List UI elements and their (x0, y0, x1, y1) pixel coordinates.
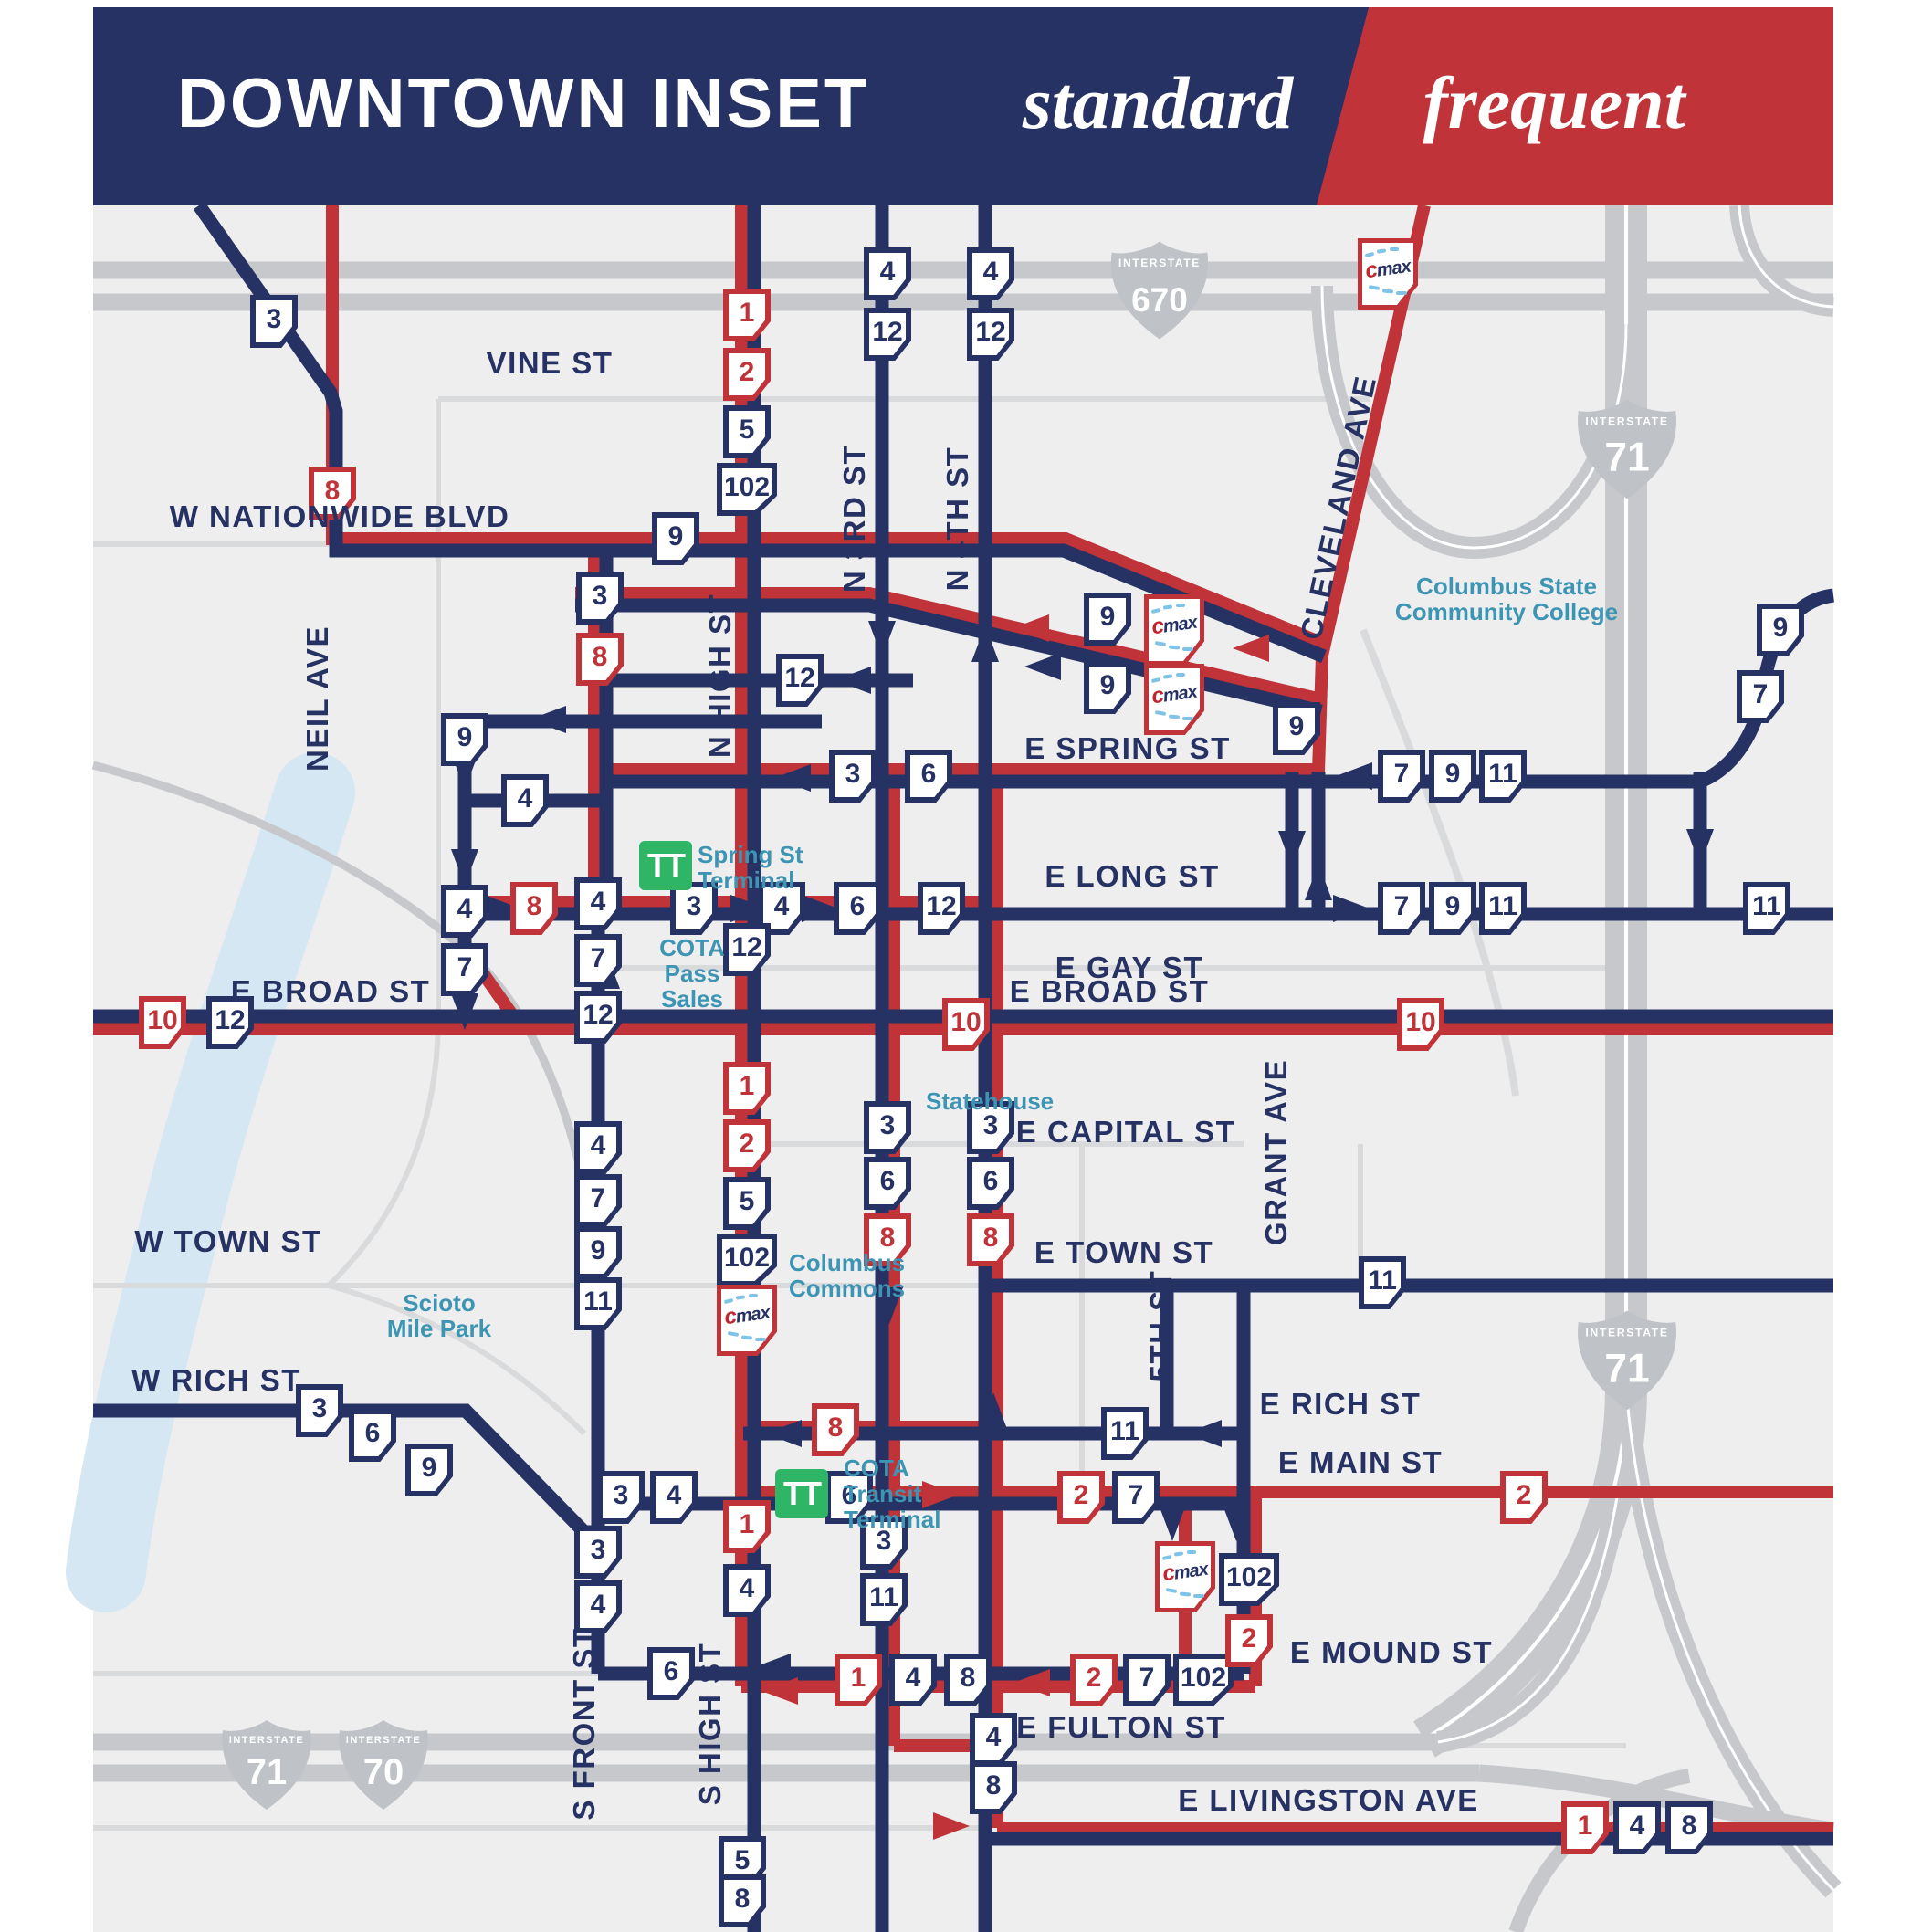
transit-terminal-icon: TT (639, 841, 692, 890)
svg-text:71: 71 (1604, 1346, 1649, 1391)
cmax-route-badge: cmax (1358, 238, 1418, 310)
landmark-label: Spring St Terminal (698, 842, 803, 893)
route-badge-4: 4 (970, 1713, 1017, 1766)
route-badge-1: 1 (723, 289, 771, 341)
route-direction-arrow (1233, 635, 1269, 662)
route-badge-1: 1 (723, 1062, 771, 1115)
interstate-71-shield: INTERSTATE71 (1571, 394, 1683, 505)
interstate-670-shield: INTERSTATE670 (1105, 236, 1214, 345)
route-badge-7: 7 (441, 943, 488, 996)
route-badge-102: 102 (717, 1234, 777, 1286)
route-badge-4: 4 (967, 247, 1014, 300)
landmark-label: Columbus State Community College (1395, 573, 1618, 625)
street-label: NEIL AVE (300, 625, 335, 772)
street-label: VINE ST (487, 346, 614, 381)
route-direction-arrow (1024, 653, 1061, 680)
cmax-route-badge: cmax (717, 1285, 777, 1356)
route-badge-10: 10 (139, 996, 186, 1049)
route-badge-6: 6 (834, 882, 881, 935)
route-badge-11: 11 (860, 1573, 908, 1626)
route-badge-1: 1 (723, 1500, 771, 1553)
route-badge-6: 6 (647, 1647, 695, 1700)
street-label: E TOWN ST (1034, 1235, 1213, 1270)
route-badge-102: 102 (1219, 1553, 1279, 1606)
route-direction-arrow (1305, 864, 1332, 900)
route-badge-4: 4 (889, 1654, 937, 1706)
street-label: E LIVINGSTON AVE (1178, 1783, 1479, 1818)
street-label: E LONG ST (1045, 859, 1219, 894)
cmax-route-badge: cmax (1155, 1541, 1215, 1612)
route-badge-2: 2 (723, 1119, 771, 1172)
route-badge-6: 6 (349, 1409, 396, 1462)
route-badge-11: 11 (1479, 750, 1527, 803)
street-label: W NATIONWIDE BLVD (170, 499, 510, 534)
route-badge-11: 11 (1359, 1256, 1406, 1309)
route-badge-4: 4 (574, 877, 622, 930)
route-badge-8: 8 (970, 1761, 1017, 1814)
route-badge-8: 8 (576, 633, 624, 686)
route-badge-4: 4 (574, 1580, 622, 1633)
route-badge-4: 4 (501, 774, 549, 827)
street-label: E CAPITAL ST (1016, 1115, 1235, 1150)
route-badge-4: 4 (650, 1471, 698, 1524)
route-direction-arrow (1278, 831, 1306, 867)
svg-text:INTERSTATE: INTERSTATE (1585, 1326, 1668, 1339)
svg-text:670: 670 (1131, 280, 1188, 319)
route-direction-arrow (835, 667, 871, 694)
interstate-71-shield: INTERSTATE71 (216, 1715, 317, 1815)
route-badge-3: 3 (574, 1526, 622, 1579)
route-badge-11: 11 (1101, 1407, 1149, 1460)
route-badge-9: 9 (405, 1444, 453, 1496)
route-badge-4: 4 (574, 1121, 622, 1174)
landmark-label: Scioto Mile Park (387, 1290, 491, 1341)
street-label: N 3RD ST (837, 445, 872, 593)
route-badge-2: 2 (1057, 1471, 1105, 1524)
route-badge-11: 11 (574, 1277, 622, 1330)
route-badge-11: 11 (1479, 882, 1527, 935)
route-network-canvas (0, 0, 1932, 1932)
street-label: E FULTON ST (1016, 1710, 1226, 1745)
route-badge-3: 3 (864, 1101, 911, 1154)
transit-map-page: 3812510241241293894123699979119747471283… (0, 0, 1932, 1932)
route-badge-10: 10 (1397, 998, 1444, 1051)
route-badge-12: 12 (864, 308, 911, 361)
route-direction-arrow (933, 1812, 970, 1840)
svg-text:INTERSTATE: INTERSTATE (346, 1735, 421, 1746)
landmark-label: COTA Pass Sales (659, 935, 725, 1012)
route-badge-2: 2 (1070, 1654, 1118, 1706)
route-badge-9: 9 (1429, 750, 1476, 803)
route-badge-8: 8 (944, 1654, 992, 1706)
route-badge-8: 8 (1665, 1801, 1713, 1854)
svg-text:INTERSTATE: INTERSTATE (1585, 415, 1668, 427)
route-badge-102: 102 (717, 463, 777, 516)
route-badge-2: 2 (1500, 1471, 1548, 1524)
route-badge-11: 11 (1743, 882, 1790, 935)
route-badge-7: 7 (1123, 1654, 1171, 1706)
route-badge-9: 9 (652, 512, 699, 565)
svg-text:INTERSTATE: INTERSTATE (1118, 257, 1201, 269)
route-badge-12: 12 (918, 882, 965, 935)
route-badge-5: 5 (723, 1177, 771, 1230)
street-label: E MOUND ST (1290, 1635, 1493, 1670)
street-label: E BROAD ST (231, 974, 431, 1009)
route-badge-8: 8 (719, 1874, 766, 1927)
street-label: 5TH ST (1144, 1270, 1179, 1382)
frequent-legend-label: frequent (1423, 60, 1685, 146)
route-badge-9: 9 (574, 1226, 622, 1279)
street-label: S HIGH ST (693, 1643, 728, 1806)
street-label: E SPRING ST (1024, 731, 1231, 766)
street-label: E RICH ST (1260, 1387, 1422, 1422)
route-direction-arrow (1686, 829, 1714, 866)
page-title: DOWNTOWN INSET (177, 64, 869, 143)
landmark-label: Columbus Commons (789, 1250, 905, 1301)
street-label: W RICH ST (131, 1363, 301, 1398)
route-direction-arrow (868, 621, 896, 657)
route-badge-8: 8 (510, 882, 558, 935)
route-badge-7: 7 (1112, 1471, 1160, 1524)
route-badge-4: 4 (723, 1564, 771, 1617)
route-badge-3: 3 (829, 750, 877, 803)
route-badge-9: 9 (1757, 604, 1804, 656)
route-badge-1: 1 (835, 1654, 882, 1706)
route-badge-4: 4 (441, 885, 488, 938)
route-badge-6: 6 (905, 750, 952, 803)
route-badge-7: 7 (1737, 670, 1784, 723)
landmark-label: Statehouse (926, 1088, 1054, 1114)
svg-text:INTERSTATE: INTERSTATE (229, 1735, 304, 1746)
route-badge-12: 12 (776, 654, 824, 707)
route-badge-10: 10 (942, 998, 990, 1051)
route-badge-8: 8 (967, 1213, 1014, 1266)
map-legend-header: DOWNTOWN INSET standard frequent (93, 7, 1833, 205)
route-badge-2: 2 (723, 348, 771, 401)
route-badge-2: 2 (1225, 1614, 1273, 1667)
landmark-label: COTA Transit Terminal (844, 1455, 940, 1532)
route-badge-9: 9 (1429, 882, 1476, 935)
route-badge-7: 7 (1378, 882, 1425, 935)
street-label: N 4TH ST (940, 446, 975, 592)
transit-terminal-icon: TT (775, 1469, 828, 1518)
route-badge-12: 12 (967, 308, 1014, 361)
street-label: N HIGH ST (703, 593, 738, 758)
cmax-route-badge: cmax (1144, 594, 1204, 666)
route-badge-12: 12 (574, 991, 622, 1044)
street-label: GRANT AVE (1259, 1059, 1294, 1245)
route-badge-6: 6 (967, 1157, 1014, 1210)
svg-text:71: 71 (1604, 435, 1649, 479)
svg-text:70: 70 (363, 1752, 404, 1792)
route-badge-3: 3 (296, 1384, 343, 1437)
route-direction-arrow (451, 849, 478, 886)
route-badge-7: 7 (574, 934, 622, 987)
route-badge-12: 12 (723, 923, 771, 976)
route-badge-9: 9 (1273, 702, 1320, 755)
interstate-71-shield: INTERSTATE71 (1571, 1305, 1683, 1416)
route-direction-arrow (1185, 1420, 1222, 1447)
route-badge-4: 4 (1613, 1801, 1661, 1854)
route-badge-8: 8 (812, 1403, 859, 1456)
street-label: E MAIN ST (1278, 1445, 1443, 1480)
route-badge-9: 9 (441, 713, 488, 766)
route-badge-3: 3 (597, 1471, 645, 1524)
route-badge-9: 9 (1084, 593, 1131, 646)
route-badge-3: 3 (576, 572, 624, 625)
interstate-70-shield: INTERSTATE70 (333, 1715, 434, 1815)
street-label: S FRONT ST (567, 1627, 602, 1820)
route-direction-arrow (530, 706, 566, 733)
street-label: E BROAD ST (1010, 974, 1210, 1009)
svg-text:71: 71 (247, 1752, 288, 1792)
route-badge-4: 4 (864, 247, 911, 300)
route-badge-7: 7 (574, 1174, 622, 1227)
route-badge-7: 7 (1378, 750, 1425, 803)
route-badge-3: 3 (250, 295, 298, 348)
cmax-route-badge: cmax (1144, 664, 1204, 735)
route-badge-5: 5 (723, 405, 771, 458)
street-label: W TOWN ST (134, 1224, 321, 1259)
route-badge-9: 9 (1084, 661, 1131, 714)
route-badge-1: 1 (1561, 1801, 1609, 1854)
route-badge-6: 6 (864, 1157, 911, 1210)
standard-legend-label: standard (1023, 60, 1293, 146)
